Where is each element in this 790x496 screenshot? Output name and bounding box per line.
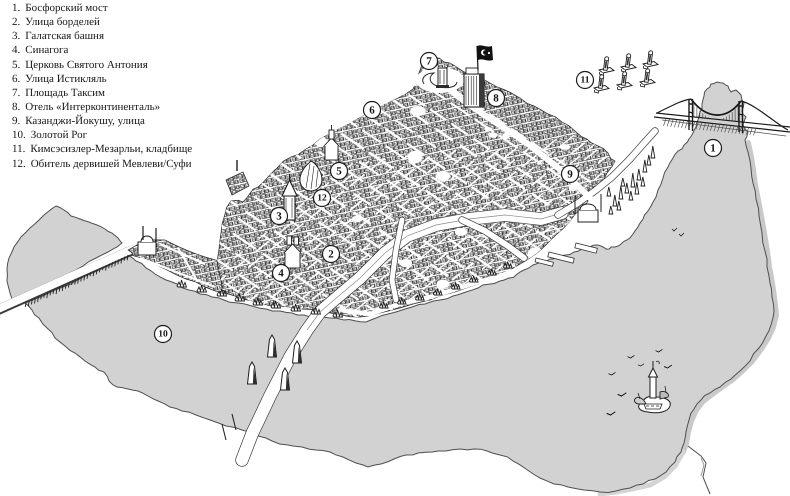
svg-text:3: 3 (276, 210, 282, 222)
svg-text:7: 7 (426, 55, 432, 67)
svg-text:6: 6 (369, 104, 375, 116)
svg-text:11: 11 (580, 75, 589, 85)
svg-text:5: 5 (336, 165, 342, 177)
svg-text:10: 10 (158, 329, 168, 339)
svg-text:8: 8 (493, 92, 499, 104)
svg-text:9: 9 (567, 168, 573, 180)
svg-text:2: 2 (328, 248, 334, 260)
svg-text:1: 1 (710, 142, 716, 154)
svg-text:12: 12 (317, 193, 327, 203)
svg-text:4: 4 (278, 267, 284, 279)
